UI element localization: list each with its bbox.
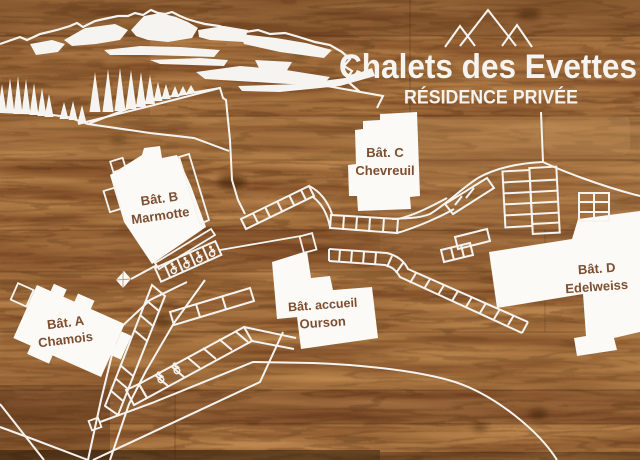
svg-text:Chalets des Evettes: Chalets des Evettes: [339, 48, 637, 86]
svg-text:Bât. D: Bât. D: [577, 260, 616, 278]
svg-text:Chevreuil: Chevreuil: [355, 163, 414, 178]
svg-text:Bât. C: Bât. C: [366, 145, 404, 160]
svg-text:RÉSIDENCE PRIVÉE: RÉSIDENCE PRIVÉE: [404, 86, 578, 109]
